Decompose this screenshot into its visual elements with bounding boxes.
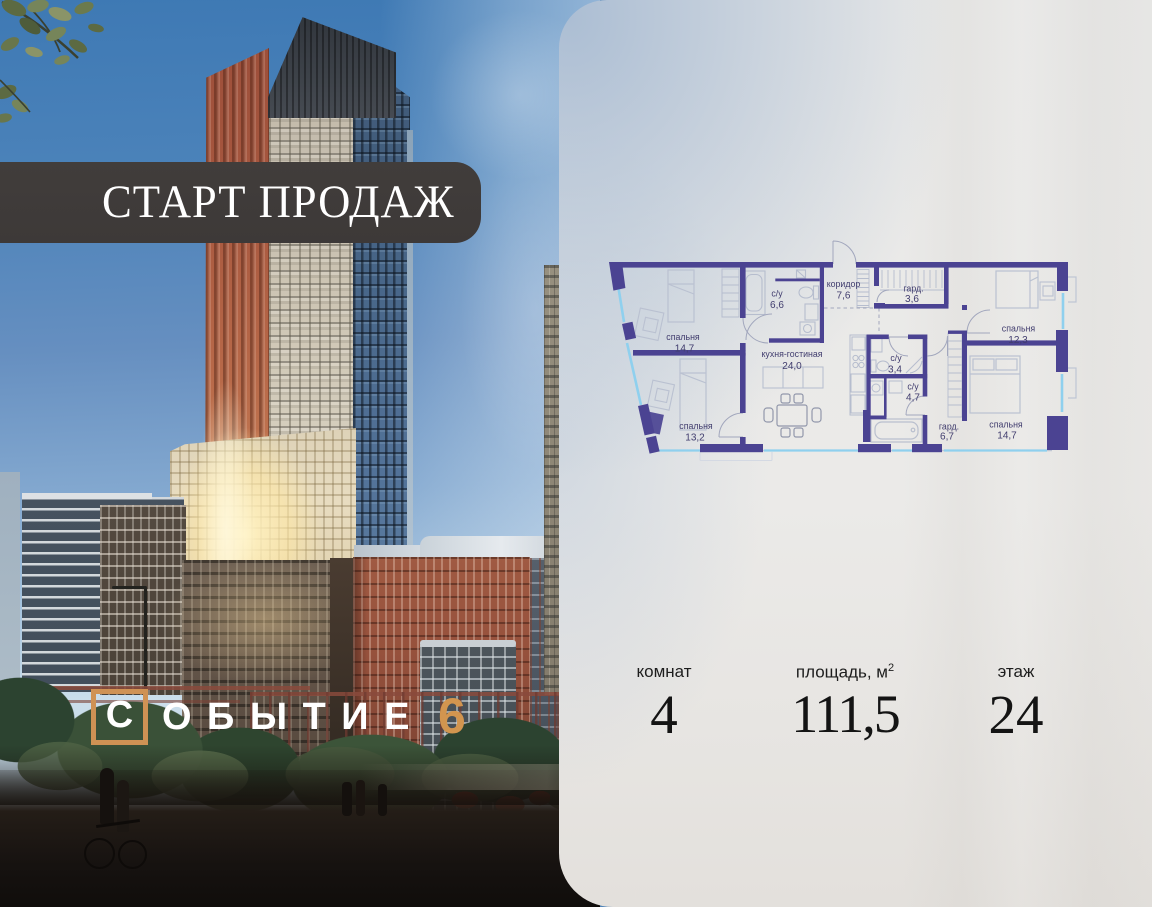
svg-text:12,3: 12,3 bbox=[1008, 335, 1028, 346]
svg-text:спальня: спальня bbox=[679, 421, 713, 431]
svg-text:гард.: гард. bbox=[939, 422, 959, 432]
svg-text:гард.: гард. bbox=[903, 284, 923, 294]
svg-text:с/у: с/у bbox=[890, 353, 902, 363]
svg-text:4,7: 4,7 bbox=[906, 393, 920, 404]
svg-text:24,0: 24,0 bbox=[782, 361, 802, 372]
svg-text:13,2: 13,2 bbox=[685, 433, 705, 444]
svg-text:коридор: коридор bbox=[827, 279, 861, 289]
svg-text:спальня: спальня bbox=[1002, 324, 1036, 334]
svg-text:с/у: с/у bbox=[907, 382, 919, 392]
svg-text:спальня: спальня bbox=[989, 420, 1023, 430]
svg-text:14,7: 14,7 bbox=[675, 344, 695, 355]
svg-text:спальня: спальня bbox=[666, 332, 700, 342]
svg-text:6,6: 6,6 bbox=[770, 300, 784, 311]
svg-text:с/у: с/у bbox=[771, 289, 783, 299]
svg-text:3,4: 3,4 bbox=[888, 365, 902, 376]
svg-text:6,7: 6,7 bbox=[940, 432, 954, 443]
svg-text:7,6: 7,6 bbox=[837, 291, 851, 302]
svg-text:3,6: 3,6 bbox=[905, 294, 919, 305]
svg-text:14,7: 14,7 bbox=[997, 431, 1017, 442]
svg-text:кухня-гостиная: кухня-гостиная bbox=[761, 349, 822, 359]
